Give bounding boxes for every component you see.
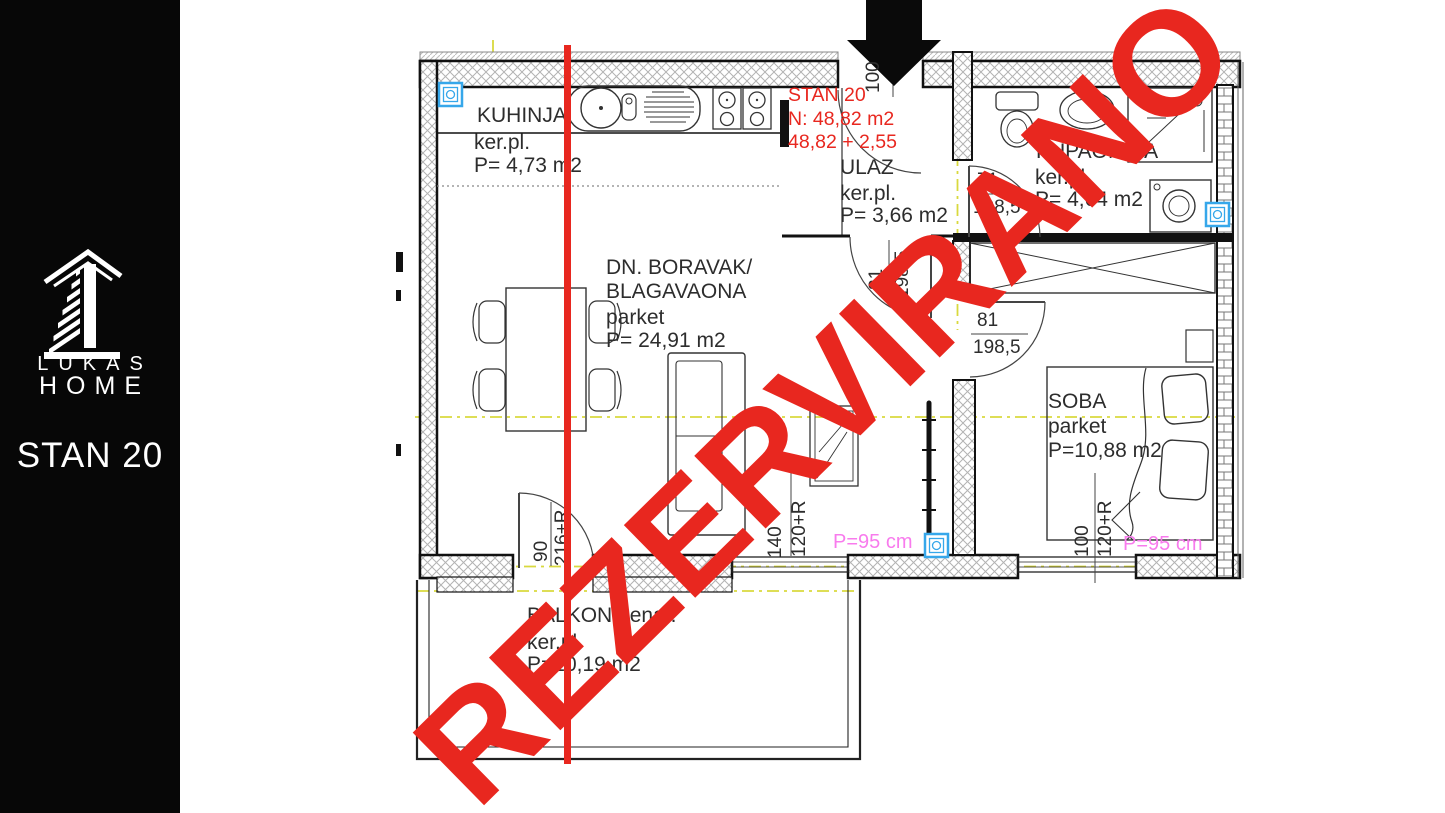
dim-window-bedroom-height: 120+R <box>1095 500 1116 557</box>
room-floor-soba: parket <box>1048 415 1106 439</box>
kitchen-sink-icon <box>568 86 700 131</box>
red-section-line <box>564 45 571 764</box>
room-floor-ulaz: ker.pl. <box>840 182 896 206</box>
room-label-boravak-line2: BLAGAVAONA <box>606 280 746 304</box>
dining-table-icon <box>506 288 586 431</box>
stove-icon <box>713 88 771 129</box>
chair-icon <box>473 301 621 411</box>
parapet-label-living: P=95 cm <box>833 531 912 553</box>
room-area-boravak: P= 24,91 m2 <box>606 329 726 353</box>
lukas-home-logo-icon <box>0 240 180 370</box>
sidebar: LUKAS HOME STAN 20 <box>0 0 180 813</box>
room-floor-boravak: parket <box>606 306 664 330</box>
room-label-kuhinja: KUHINJA <box>477 104 567 128</box>
unit-net-area: N: 48,82 m2 <box>788 108 897 132</box>
room-floor-kuhinja: ker.pl. <box>474 131 530 155</box>
floor-plan-page: KUHINJA ker.pl. P= 4,73 m2 ULAZ ker.pl. … <box>0 0 1445 813</box>
room-label-soba: SOBA <box>1048 390 1106 414</box>
parapet-label-bedroom: P=95 cm <box>1123 533 1202 555</box>
room-label-ulaz: ULAZ <box>840 156 894 180</box>
room-label-boravak-line1: DN. BORAVAK/ <box>606 256 752 280</box>
sidebar-unit-label: STAN 20 <box>0 436 180 476</box>
unit-info-block: STAN 20 N: 48,82 m2 48,82 + 2,55 <box>788 84 897 155</box>
room-area-soba: P=10,88 m2 <box>1048 439 1162 463</box>
unit-title: STAN 20 <box>788 84 897 108</box>
brand-name-bottom: HOME <box>0 372 180 401</box>
unit-area-sum: 48,82 + 2,55 <box>788 131 897 155</box>
nightstand-icon <box>1186 330 1213 362</box>
dim-window-bedroom-width: 100 <box>1072 525 1093 557</box>
radiator-icon <box>922 403 936 537</box>
